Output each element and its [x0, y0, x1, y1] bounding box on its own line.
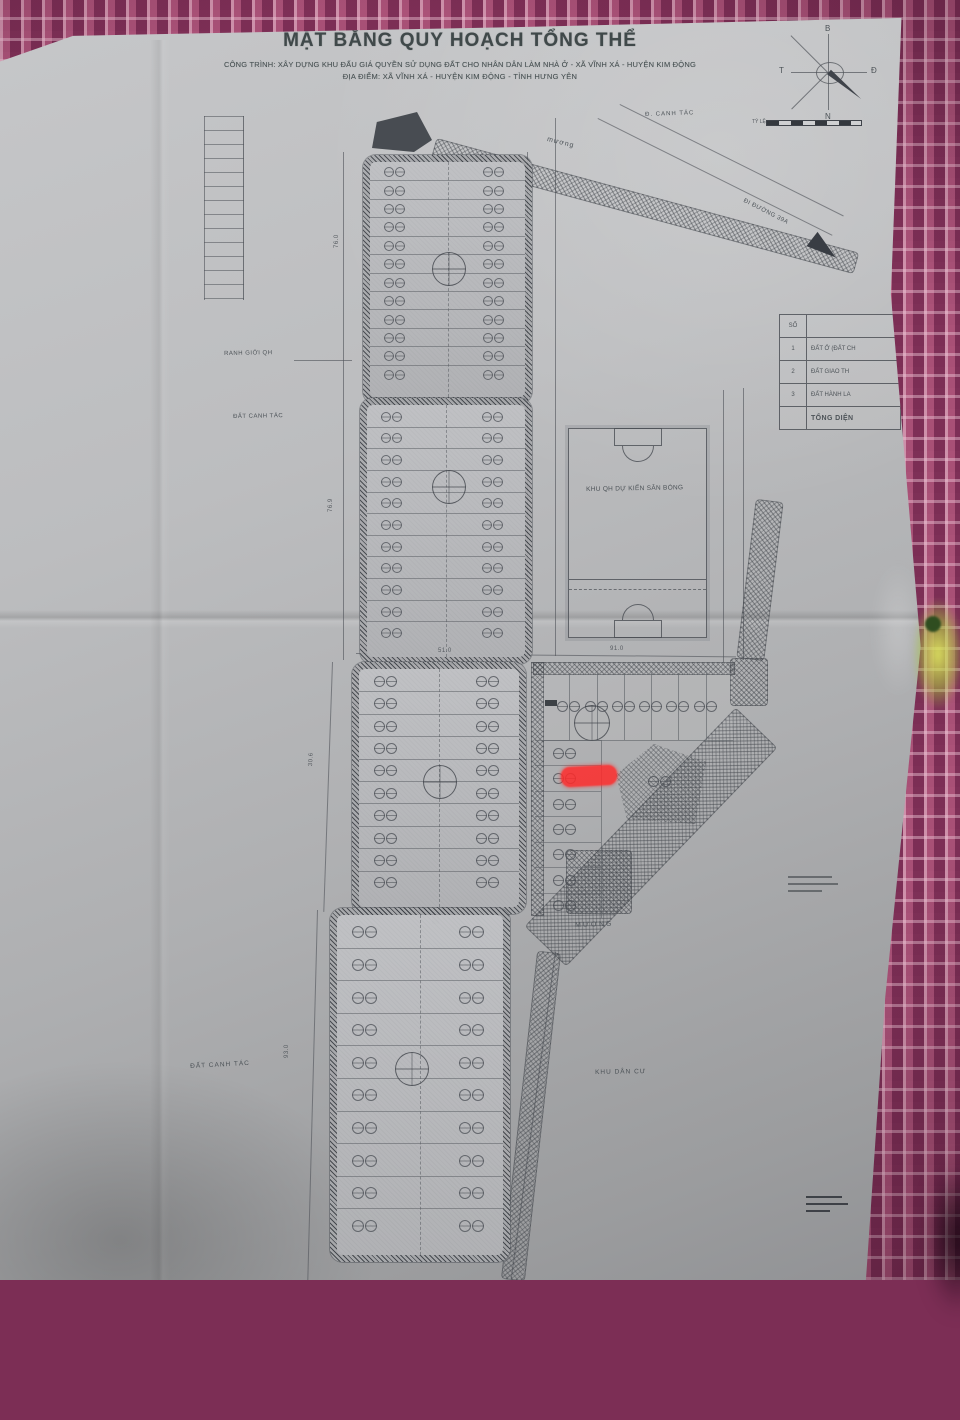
- lot-stamp-icon: [374, 676, 397, 687]
- lot-stamp-icon: [553, 875, 576, 886]
- lot-stamp-icon: [553, 900, 576, 911]
- lot-stamp-icon: [476, 810, 499, 821]
- dimension-label: 91.0: [610, 646, 624, 652]
- lot-stamp-icon: [381, 498, 402, 508]
- lot-stamp-icon: [381, 412, 402, 422]
- note-text-block: [788, 876, 840, 892]
- lot-stamp-icon: [483, 351, 504, 361]
- lot-divider: [359, 803, 519, 804]
- lot-stamp-icon: [459, 992, 484, 1004]
- block-number-stamp-icon: [432, 252, 466, 286]
- lot-stamp-icon: [459, 1057, 484, 1069]
- lot-divider: [367, 556, 525, 557]
- lot-stamp-icon: [381, 455, 402, 465]
- plot-block-inner: [370, 162, 525, 397]
- lot-stamp-icon: [483, 315, 504, 325]
- lot-stamp-icon: [553, 824, 576, 835]
- label-dat-canh-tac-bottom: ĐẤT CANH TÁC: [190, 1060, 250, 1070]
- lot-stamp-icon: [384, 241, 405, 251]
- lot-stamp-icon: [374, 721, 397, 732]
- lot-divider: [337, 1111, 503, 1112]
- block-number-stamp-icon: [432, 470, 466, 504]
- block-number-stamp-icon: [574, 705, 610, 741]
- green-object: [925, 616, 941, 632]
- lot-divider: [370, 291, 525, 292]
- lot-stamp-icon: [483, 296, 504, 306]
- lot-stamp-icon: [694, 701, 717, 712]
- lot-stamp-icon: [374, 833, 397, 844]
- lot-stamp-icon: [374, 698, 397, 709]
- lot-divider: [359, 848, 519, 849]
- lot-stamp-icon: [483, 333, 504, 343]
- lot-stamp-icon: [553, 748, 576, 759]
- lot-stamp-icon: [483, 370, 504, 380]
- lot-divider: [337, 1013, 503, 1014]
- lot-stamp-icon: [459, 1220, 484, 1232]
- lot-stamp-icon: [381, 520, 402, 530]
- lot-stamp-icon: [483, 167, 504, 177]
- lot-stamp-icon: [612, 701, 635, 712]
- plot-block-inner: [359, 669, 519, 907]
- lot-stamp-icon: [384, 167, 405, 177]
- block-midline: [446, 405, 447, 657]
- lot-stamp-icon: [482, 563, 503, 573]
- lot-stamp-icon: [352, 1089, 377, 1101]
- lot-stamp-icon: [352, 1155, 377, 1167]
- lot-divider: [359, 714, 519, 715]
- lot-stamp-icon: [381, 542, 402, 552]
- lot-stamp-icon: [482, 498, 503, 508]
- lot-stamp-icon: [352, 1187, 377, 1199]
- lot-divider: [367, 600, 525, 601]
- dimension-label: 30.6: [308, 752, 315, 766]
- verge-patch: [730, 658, 768, 706]
- lot-divider: [359, 736, 519, 737]
- road-line: [555, 118, 556, 656]
- goal-box-icon: [614, 620, 662, 638]
- lot-stamp-icon: [476, 855, 499, 866]
- lot-divider: [367, 448, 525, 449]
- lot-stamp-icon: [384, 278, 405, 288]
- lot-stamp-icon: [459, 926, 484, 938]
- lot-stamp-icon: [476, 743, 499, 754]
- label-muong-bottom: MƯƠNG: [575, 921, 614, 929]
- lot-divider: [337, 1208, 503, 1209]
- lot-divider: [370, 236, 525, 237]
- lot-stamp-icon: [384, 222, 405, 232]
- lot-divider: [337, 1143, 503, 1144]
- lot-stamp-icon: [381, 585, 402, 595]
- lot-divider: [337, 1045, 503, 1046]
- label-ranh-gioi-qh: RANH GIỚI QH: [224, 350, 273, 357]
- lot-divider: [359, 759, 519, 760]
- lot-stamp-icon: [482, 477, 503, 487]
- lot-stamp-icon: [384, 204, 405, 214]
- lot-divider: [535, 867, 601, 868]
- plot-block: [330, 908, 510, 1262]
- football-field: [568, 428, 707, 638]
- lot-stamp-icon: [476, 676, 499, 687]
- lot-stamp-icon: [374, 765, 397, 776]
- lot-stamp-icon: [483, 186, 504, 196]
- lot-stamp-icon: [476, 721, 499, 732]
- lot-stamp-icon: [459, 1089, 484, 1101]
- lot-stamp-icon: [381, 607, 402, 617]
- yellow-object: [912, 598, 960, 710]
- lot-divider: [370, 365, 525, 366]
- label-muong-top: mương: [546, 136, 575, 150]
- lot-stamp-icon: [352, 992, 377, 1004]
- lot-stamp-icon: [482, 542, 503, 552]
- plot-block-inner: [367, 405, 525, 657]
- lot-divider: [370, 180, 525, 181]
- lot-stamp-icon: [482, 433, 503, 443]
- lot-stamp-icon: [352, 1220, 377, 1232]
- lot-stamp-icon: [459, 959, 484, 971]
- lot-stamp-icon: [459, 1024, 484, 1036]
- goal-box-icon: [622, 604, 654, 620]
- lot-divider: [535, 791, 601, 792]
- lot-stamp-icon: [384, 370, 405, 380]
- lot-stamp-icon: [374, 877, 397, 888]
- lot-divider: [359, 826, 519, 827]
- lot-stamp-icon: [476, 788, 499, 799]
- road-line: [323, 662, 333, 912]
- lot-divider: [367, 513, 525, 514]
- lot-stamp-icon: [482, 628, 503, 638]
- lot-stamp-icon: [381, 433, 402, 443]
- lot-stamp-icon: [476, 765, 499, 776]
- highlighted-plot: [561, 765, 618, 788]
- field-line: [569, 579, 706, 580]
- lot-stamp-icon: [482, 585, 503, 595]
- lot-divider: [367, 621, 525, 622]
- lot-divider: [337, 1176, 503, 1177]
- label-khu-dan-cu: KHU DÂN CƯ: [595, 1068, 646, 1076]
- lot-divider: [370, 346, 525, 347]
- plot-block: [360, 398, 532, 664]
- road-line: [307, 910, 318, 1282]
- dimension-label: 51.0: [438, 648, 452, 654]
- goal-box-icon: [614, 428, 662, 446]
- lot-divider: [370, 328, 525, 329]
- photo-of-site-plan: { "photo": { "fabric_color": "#8a3a63", …: [0, 0, 960, 1280]
- lot-stamp-icon: [352, 959, 377, 971]
- block-number-stamp-icon: [423, 765, 457, 799]
- dimension-label: 76.9: [328, 498, 334, 512]
- lot-stamp-icon: [384, 259, 405, 269]
- block-e-top-row: [542, 673, 733, 741]
- site-plan-drawing: mươngĐ. CANH TÁCRANH GIỚI QHĐẤT CANH TÁC…: [0, 0, 960, 1280]
- lot-divider: [535, 740, 601, 741]
- lot-divider: [367, 578, 525, 579]
- lot-stamp-icon: [352, 1122, 377, 1134]
- stamp-text-block: [806, 1196, 852, 1212]
- lot-stamp-icon: [482, 412, 503, 422]
- lot-stamp-icon: [381, 628, 402, 638]
- lot-stamp-icon: [374, 810, 397, 821]
- block-number-stamp-icon: [395, 1052, 429, 1086]
- lot-stamp-icon: [476, 698, 499, 709]
- lot-stamp-icon: [648, 776, 671, 787]
- lot-stamp-icon: [374, 788, 397, 799]
- plot-block-inner: [337, 915, 503, 1255]
- lot-stamp-icon: [384, 333, 405, 343]
- lot-divider: [359, 871, 519, 872]
- lot-divider: [337, 948, 503, 949]
- lot-stamp-icon: [374, 743, 397, 754]
- lot-stamp-icon: [482, 455, 503, 465]
- lot-stamp-icon: [352, 1057, 377, 1069]
- block-midline: [420, 915, 421, 1255]
- road-line: [343, 152, 344, 660]
- paper-sheet: MẶT BẰNG QUY HOẠCH TỔNG THỂ CÔNG TRÌNH: …: [0, 0, 960, 1280]
- lot-stamp-icon: [483, 204, 504, 214]
- lot-stamp-icon: [352, 926, 377, 938]
- lot-stamp-icon: [483, 278, 504, 288]
- lot-stamp-icon: [459, 1155, 484, 1167]
- lot-stamp-icon: [381, 477, 402, 487]
- label-dat-canh-tac-left: ĐẤT CANH TÁC: [233, 413, 283, 420]
- lot-stamp-icon: [482, 607, 503, 617]
- lot-stamp-icon: [384, 186, 405, 196]
- goal-box-icon: [622, 446, 654, 462]
- lot-stamp-icon: [483, 241, 504, 251]
- plot-block: [363, 155, 532, 404]
- lot-divider: [370, 217, 525, 218]
- lot-stamp-icon: [352, 1024, 377, 1036]
- lot-divider: [359, 691, 519, 692]
- lot-stamp-icon: [553, 849, 576, 860]
- lot-stamp-icon: [557, 701, 580, 712]
- lot-stamp-icon: [483, 222, 504, 232]
- lot-divider: [535, 816, 601, 817]
- plot-block: [352, 662, 526, 914]
- lot-stamp-icon: [384, 315, 405, 325]
- lot-stamp-icon: [384, 351, 405, 361]
- lot-stamp-icon: [482, 520, 503, 530]
- lot-divider: [337, 980, 503, 981]
- lot-stamp-icon: [476, 877, 499, 888]
- lot-stamp-icon: [374, 855, 397, 866]
- lot-divider: [535, 842, 601, 843]
- label-dat-canh-tac-top: Đ. CANH TÁC: [645, 110, 694, 118]
- lot-stamp-icon: [483, 259, 504, 269]
- lot-divider: [370, 309, 525, 310]
- lot-stamp-icon: [381, 563, 402, 573]
- lot-divider: [367, 535, 525, 536]
- lot-stamp-icon: [459, 1187, 484, 1199]
- road-line: [294, 360, 352, 361]
- lot-stamp-icon: [666, 701, 689, 712]
- lot-stamp-icon: [459, 1122, 484, 1134]
- lot-stamp-icon: [553, 799, 576, 810]
- road-line: [723, 390, 724, 662]
- dimension-label: 93.0: [284, 1044, 290, 1058]
- lot-stamp-icon: [639, 701, 662, 712]
- field-dashed-line: [569, 589, 706, 590]
- lot-stamp-icon: [476, 833, 499, 844]
- lot-divider: [370, 199, 525, 200]
- pond-shape: [372, 112, 432, 152]
- dimension-label: 76.0: [334, 234, 340, 248]
- lot-divider: [367, 427, 525, 428]
- lot-stamp-icon: [384, 296, 405, 306]
- lot-divider: [535, 893, 601, 894]
